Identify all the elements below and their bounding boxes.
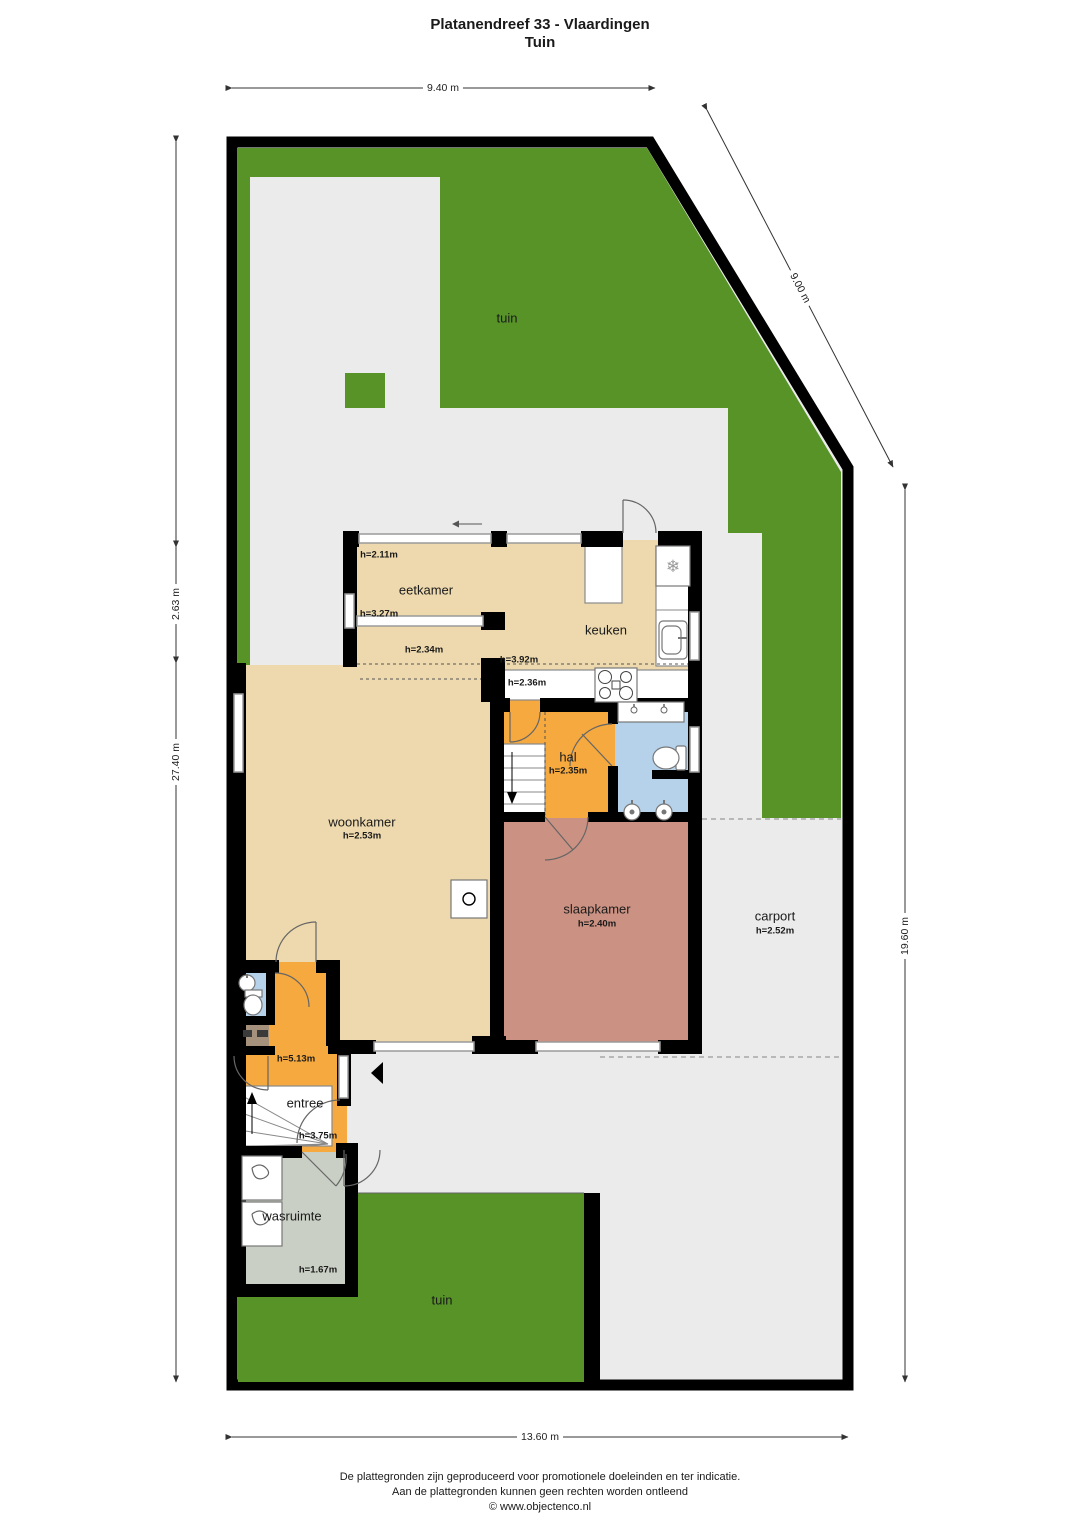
fireplace-icon [451,880,487,918]
height-carport: h=2.52m [756,926,794,937]
height-eetkamer-1: h=2.11m [360,550,398,561]
toilet-icon [653,746,686,770]
room-label-wasruimte: wasruimte [262,1209,321,1224]
fridge-box: ❄ [656,546,690,586]
kitchen-island [585,543,622,603]
eetkamer-keuken-floor [352,540,697,672]
room-label-entree: entree [287,1096,324,1111]
room-label-slaapkamer: slaapkamer [563,902,630,917]
fridge-icon: ❄ [666,557,680,576]
entree-corridor-floor [266,962,332,1046]
sink-icon [659,621,687,659]
room-label-tuin-top: tuin [497,311,518,326]
washing-machine-icon [242,1156,282,1200]
footer-line-1: De plattegronden zijn geproduceerd voor … [0,1470,1080,1485]
dim-bottom: 13.60 m [517,1431,563,1443]
floor-plan-canvas: ❄ [0,0,1080,1527]
room-label-tuin-bottom: tuin [432,1293,453,1308]
floorplan-page: Platanendreef 33 - Vlaardingen Tuin [0,0,1080,1527]
room-label-hal: hal [559,750,576,765]
footer-disclaimer: De plattegronden zijn geproduceerd voor … [0,1470,1080,1515]
dim-left-inner: 2.63 m [170,584,182,624]
hob-icon [595,668,637,702]
room-label-woonkamer: woonkamer [328,815,395,830]
height-wasruimte: h=1.67m [299,1265,337,1276]
slaapkamer-floor [497,818,697,1042]
footer-copyright: © www.objectenco.nl [0,1500,1080,1515]
dim-right: 19.60 m [899,913,911,959]
bathroom-vanity [618,702,684,722]
height-eetkamer-3: h=2.34m [405,645,443,656]
height-entree-1: h=5.13m [277,1054,315,1065]
height-woonkamer: h=2.53m [343,831,381,842]
height-keuken-1: h=3.92m [500,655,538,666]
room-label-eetkamer: eetkamer [399,583,453,598]
height-entree-2: h=3.75m [299,1131,337,1142]
height-hal: h=2.35m [549,766,587,777]
height-slaapkamer: h=2.40m [578,919,616,930]
room-label-carport: carport [755,909,795,924]
footer-line-2: Aan de plattegronden kunnen geen rechten… [0,1485,1080,1500]
height-eetkamer-2: h=3.27m [360,609,398,620]
dim-left-outer: 27.40 m [170,739,182,785]
dim-top: 9.40 m [423,82,463,94]
room-label-keuken: keuken [585,623,627,638]
height-keuken-2: h=2.36m [508,678,546,689]
